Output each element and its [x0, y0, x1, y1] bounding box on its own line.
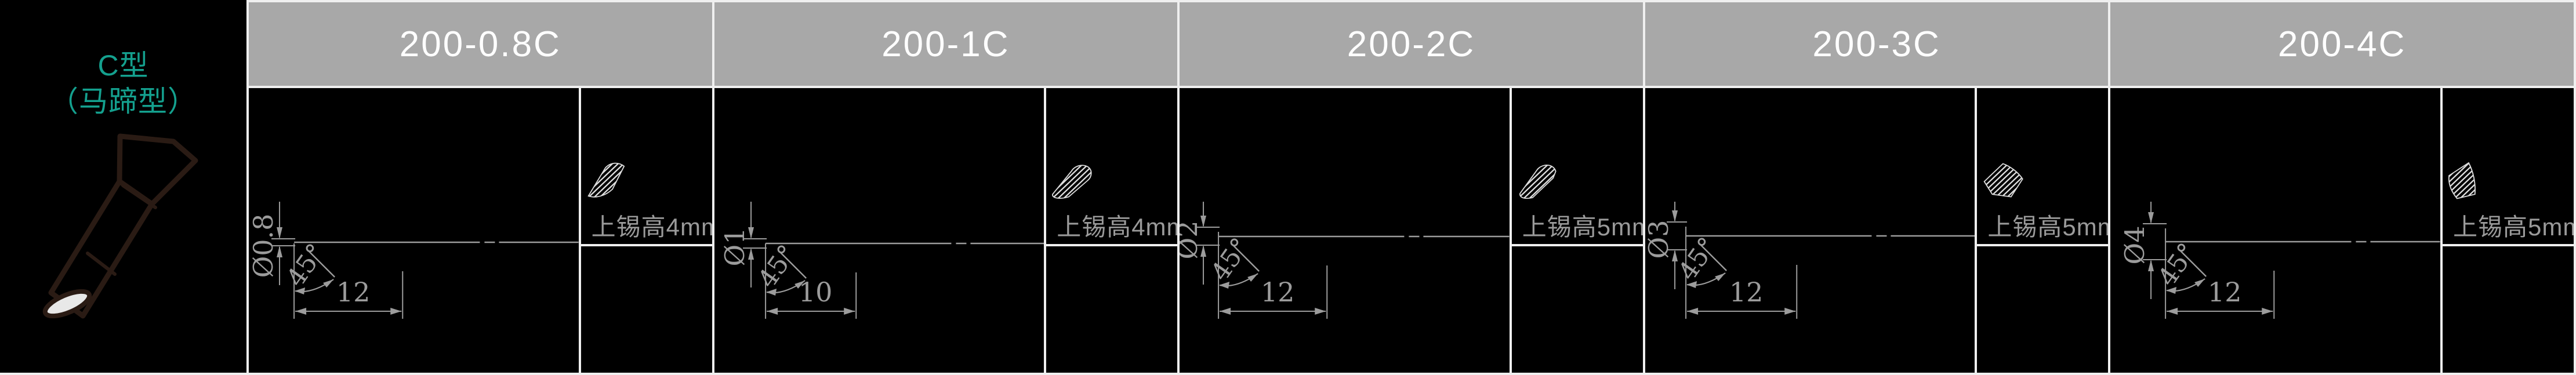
angle-label: 45° [281, 238, 331, 292]
dim-arrow-right [844, 308, 855, 315]
model-header: 200-3C [1645, 2, 2109, 88]
tin-height-cell: 上锡高5mm [2443, 88, 2574, 246]
empty-cell [2443, 246, 2574, 373]
angle-label: 45° [2153, 238, 2203, 292]
dimension-drawing-cell: Ø3 45° 12 [1645, 88, 1975, 373]
dim-arrow-left [767, 308, 778, 315]
angle-arc-arrow-right [1715, 273, 1725, 281]
model-name: 200-3C [1812, 24, 1940, 65]
tin-height-label: 上锡高5mm [1522, 207, 1643, 243]
dimension-drawing: Ø0.8 45° 12 [249, 88, 579, 373]
tin-info-cell: 上锡高5mm [1975, 88, 2108, 373]
tin-area-icon [2447, 161, 2505, 199]
angle-label: 45° [1672, 232, 1723, 286]
dimension-drawing: Ø2 45° 12 [1180, 88, 1510, 373]
tin-info-cell: 上锡高4mm [579, 88, 712, 373]
dimension-drawing: Ø3 45° 12 [1645, 88, 1975, 373]
dim-arrow-right [1315, 308, 1326, 315]
tin-area-shape [1984, 163, 2023, 196]
model-name: 200-1C [881, 24, 1010, 65]
tin-area-icon [1982, 161, 2040, 199]
tin-height-cell: 上锡高4mm [581, 88, 712, 246]
model-column: 200-0.8C Ø0.8 [246, 2, 712, 373]
empty-cell [1512, 246, 1643, 373]
diameter-label: Ø4 [2119, 226, 2150, 265]
model-header: 200-0.8C [249, 2, 712, 88]
dim-arrow-right [2262, 308, 2273, 315]
tin-info-cell: 上锡高5mm [1510, 88, 1643, 373]
dim-arrow-left [1687, 308, 1698, 315]
length-label: 12 [1261, 276, 1295, 308]
tin-height-cell: 上锡高5mm [1977, 88, 2108, 246]
model-name: 200-4C [2278, 24, 2406, 65]
tin-info-cell: 上锡高4mm [1044, 88, 1177, 373]
columns-container: 200-0.8C Ø0.8 [246, 0, 2576, 375]
dimension-drawing: Ø1 45° 10 [714, 88, 1044, 373]
length-label: 12 [1729, 276, 1764, 308]
dimension-drawing-cell: Ø2 45° 12 [1180, 88, 1510, 373]
tin-area-shape [2449, 163, 2475, 199]
model-column: 200-2C Ø2 [1177, 2, 1643, 373]
empty-cell [1046, 246, 1177, 373]
dim-arrow-right [390, 308, 401, 315]
tip-illustration [0, 0, 246, 375]
length-label: 12 [2208, 276, 2242, 308]
tin-area-shape [588, 163, 624, 197]
angle-arc-arrow-right [323, 279, 333, 287]
tin-height-label: 上锡高5mm [1987, 207, 2108, 243]
tin-area-icon [1051, 161, 1109, 199]
dim-arrow-left [295, 308, 306, 315]
type-panel: C型 （马蹄型） [0, 0, 246, 375]
dia-arrow-top-head [2148, 212, 2154, 224]
tin-height-cell: 上锡高4mm [1046, 88, 1177, 246]
tin-height-label: 上锡高4mm [1057, 207, 1177, 243]
diameter-label: Ø3 [1645, 220, 1674, 259]
tin-area-icon [1516, 161, 1574, 199]
length-label: 12 [336, 276, 371, 308]
tin-area-icon [586, 161, 644, 199]
dim-arrow-right [1784, 308, 1795, 315]
tin-area-shape [1520, 165, 1556, 198]
empty-cell [1977, 246, 2108, 373]
diameter-label: Ø1 [719, 228, 750, 267]
tin-height-label: 上锡高4mm [592, 207, 712, 243]
tin-height-cell: 上锡高5mm [1512, 88, 1643, 246]
tin-area-shape [1053, 165, 1091, 198]
angle-arc-arrow-right [1247, 274, 1258, 282]
spec-table: C型 （马蹄型） 200-0.8C [0, 0, 2576, 375]
model-column: 200-1C Ø1 [712, 2, 1178, 373]
dimension-drawing-cell: Ø0.8 45° 12 [249, 88, 579, 373]
model-header: 200-2C [1180, 2, 1643, 88]
dimension-drawing-cell: Ø1 45° 10 [714, 88, 1044, 373]
tin-info-cell: 上锡高5mm [2440, 88, 2574, 373]
length-label: 10 [798, 276, 832, 308]
diameter-label: Ø2 [1180, 221, 1203, 260]
model-header: 200-1C [714, 2, 1178, 88]
model-name: 200-2C [1347, 24, 1475, 65]
dimension-drawing-cell: Ø4 45° 12 [2110, 88, 2440, 373]
tin-height-label: 上锡高5mm [2453, 207, 2574, 243]
dimension-drawing: Ø4 45° 12 [2110, 88, 2440, 373]
diameter-label: Ø0.8 [249, 214, 279, 278]
dim-arrow-left [1220, 308, 1231, 315]
model-column: 200-3C Ø3 [1643, 2, 2109, 373]
angle-arc-arrow-right [2195, 279, 2205, 287]
model-column: 200-4C Ø4 [2108, 2, 2574, 373]
dim-arrow-left [2167, 308, 2178, 315]
model-name: 200-0.8C [400, 24, 561, 65]
empty-cell [581, 246, 712, 373]
angle-label: 45° [1205, 232, 1256, 286]
model-header: 200-4C [2110, 2, 2574, 88]
